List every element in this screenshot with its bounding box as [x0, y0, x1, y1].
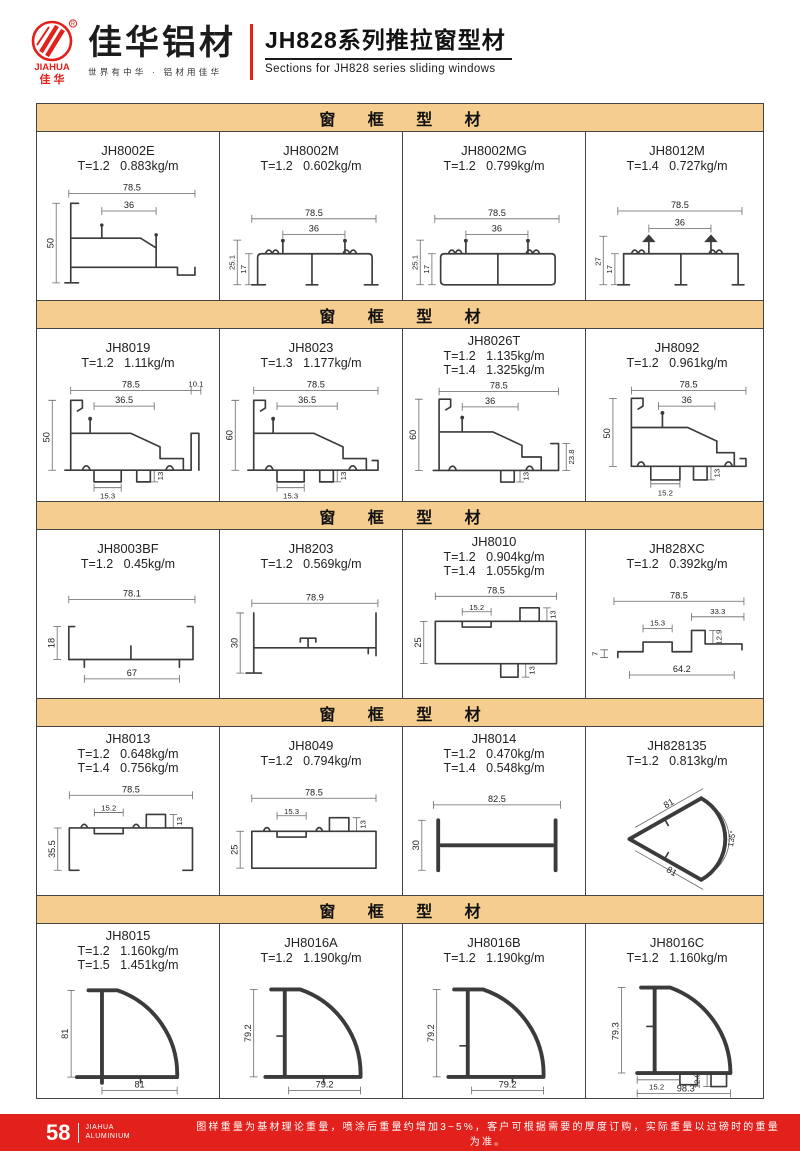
dim-label: 81 [662, 796, 676, 810]
section-title: 窗 框 型 材 [305, 303, 494, 327]
section-4: 窗 框 型 材 JH8013 T=1.2 0.648kg/m T=1.4 0.7… [37, 698, 763, 895]
profiles-table: 窗 框 型 材 JH8002E T=1.2 0.883kg/m [36, 103, 764, 1099]
dim-label: 78.5 [680, 379, 698, 389]
profile-spec: T=1.4 0.727kg/m [626, 159, 727, 173]
profile-code: JH8002MG [461, 144, 527, 159]
dim-label: 36 [492, 223, 502, 233]
profile-cell-JH8010: JH8010 T=1.2 0.904kg/m T=1.4 1.055kg/m [403, 530, 586, 698]
profile-outline [433, 399, 558, 482]
dim-label: 30 [229, 638, 239, 648]
dim-label: 13 [549, 610, 558, 619]
drawing-JH8016C: 79.3 15.2 12.9 98.3 [586, 972, 768, 1098]
profile-cell-JH8016A: JH8016A T=1.2 1.190kg/m 79.2 79.2 [220, 924, 403, 1098]
dim-label: 13 [713, 469, 722, 478]
dim-label: 25 [229, 844, 239, 854]
drawing-JH8019: 78.5 10.1 36.5 50 15.3 13 [37, 377, 219, 501]
section-title: 窗 框 型 材 [305, 106, 494, 130]
profile-spec: T=1.4 1.055kg/m [443, 564, 544, 578]
drawing-JH8203: 78.9 30 [220, 578, 402, 698]
drawing-JH8012M: 78.5 36 27 17 [586, 180, 768, 300]
profile-code: JH828XC [649, 542, 705, 557]
section-2: 窗 框 型 材 JH8019 T=1.2 1.11kg/m [37, 300, 763, 501]
profile-code: JH828135 [647, 739, 706, 754]
profile-spec: T=1.2 0.883kg/m [77, 159, 178, 173]
profile-code: JH8016B [467, 936, 520, 951]
dim-label: 78.5 [305, 787, 323, 797]
dim-label: 79.2 [316, 1079, 334, 1089]
profile-code: JH8023 [289, 341, 334, 356]
dim-label: 36 [309, 223, 319, 233]
section-4-header: 窗 框 型 材 [37, 698, 763, 727]
dim-label: 36 [682, 395, 692, 405]
section-title: 窗 框 型 材 [305, 898, 494, 922]
dim-label: 78.5 [490, 380, 508, 390]
profile-cell-JH8203: JH8203 T=1.2 0.569kg/m 78.9 30 [220, 530, 403, 698]
profile-spec: T=1.2 0.648kg/m [77, 747, 178, 761]
drawing-JH8015: 81 81 [37, 973, 219, 1098]
dim-label: 17 [605, 265, 614, 274]
dim-label: 81 [60, 1028, 70, 1038]
section-2-row: JH8019 T=1.2 1.11kg/m 78.5 [37, 329, 763, 501]
dim-label: 15.2 [649, 1082, 664, 1091]
dim-label: 7 [590, 651, 599, 655]
profile-outline [448, 989, 543, 1076]
cell-label: JH8049 T=1.2 0.794kg/m [220, 727, 402, 775]
section-5-header: 窗 框 型 材 [37, 895, 763, 924]
section-2-header: 窗 框 型 材 [37, 300, 763, 329]
dim-label: 27 [593, 257, 602, 266]
dim-label: 78.5 [122, 784, 140, 794]
dim-label: 36 [675, 217, 685, 227]
profile-outline [77, 990, 177, 1083]
section-5: 窗 框 型 材 JH8015 T=1.2 1.160kg/m T=1.5 1.4… [37, 895, 763, 1098]
profile-spec: T=1.4 0.756kg/m [77, 761, 178, 775]
profile-cell-JH8015: JH8015 T=1.2 1.160kg/m T=1.5 1.451kg/m 8… [37, 924, 220, 1098]
cell-label: JH828135 T=1.2 0.813kg/m [586, 727, 768, 775]
dim-label: 15.2 [469, 602, 484, 611]
dim-label: 60 [408, 429, 418, 439]
drawing-JH8026T: 78.5 36 60 23.8 13 [403, 378, 585, 501]
profile-spec: T=1.2 0.45kg/m [81, 557, 175, 571]
brand-title: 佳华铝材 [88, 26, 236, 60]
page-header: R JIAHUA 佳 华 佳华铝材 世界有中华 · 铝材用佳华 JH828系列推… [0, 0, 800, 103]
dimension-lines [609, 386, 746, 487]
dim-label: 35.5 [47, 840, 57, 858]
dim-label: 78.5 [488, 208, 506, 218]
profile-cell-JH8014: JH8014 T=1.2 0.470kg/m T=1.4 0.548kg/m 8… [403, 727, 586, 895]
dim-label: 36.5 [115, 395, 133, 405]
drawing-JH8010: 78.5 15.2 13 25 13 [403, 579, 585, 698]
profile-spec: T=1.2 0.904kg/m [443, 550, 544, 564]
profile-code: JH8092 [655, 341, 700, 356]
section-5-row: JH8015 T=1.2 1.160kg/m T=1.5 1.451kg/m 8… [37, 924, 763, 1098]
cell-label: JH8012M T=1.4 0.727kg/m [586, 132, 768, 180]
section-3-row: JH8003BF T=1.2 0.45kg/m 78.1 18 67 [37, 530, 763, 698]
profile-code: JH8010 [472, 535, 517, 550]
dim-label: 50 [41, 432, 51, 442]
cell-label: JH8026T T=1.2 1.135kg/m T=1.4 1.325kg/m [403, 329, 585, 378]
dim-label: 15.3 [284, 806, 299, 815]
dim-label: 79.2 [426, 1024, 436, 1042]
dim-label: 81 [134, 1079, 144, 1089]
profile-spec: T=1.4 0.548kg/m [443, 761, 544, 775]
cell-label: JH8203 T=1.2 0.569kg/m [220, 530, 402, 578]
dimension-lines [618, 987, 731, 1097]
drawing-JH8023: 78.5 36.5 60 15.3 13 [220, 377, 402, 501]
footer-note: 图样重量为基材理论重量，喷涂后重量约增加3~5%，客户可根据需要的厚度订购，实际… [130, 1118, 800, 1148]
profile-cell-JH8092: JH8092 T=1.2 0.961kg/m 78.5 [586, 329, 768, 501]
profile-cell-JH8002MG: JH8002MG T=1.2 0.799kg/m 78.5 36 [403, 132, 586, 300]
profile-outline [248, 400, 378, 482]
dim-label: 78.5 [671, 200, 689, 210]
profile-spec: T=1.2 1.190kg/m [260, 951, 361, 965]
footer-brand-line2: ALUMINIUM [85, 1133, 130, 1142]
dim-label: 79.2 [499, 1079, 517, 1089]
profile-spec: T=1.2 1.190kg/m [443, 951, 544, 965]
profile-spec: T=1.2 0.392kg/m [626, 557, 727, 571]
brand-block: 佳华铝材 世界有中华 · 铝材用佳华 [88, 26, 236, 78]
section-title: 窗 框 型 材 [305, 701, 494, 725]
cell-label: JH8092 T=1.2 0.961kg/m [586, 329, 768, 377]
profile-outline [69, 626, 193, 667]
drawing-JH828135: 81 81 135° [586, 775, 768, 895]
profile-spec: T=1.4 1.325kg/m [443, 363, 544, 377]
cell-label: JH8019 T=1.2 1.11kg/m [37, 329, 219, 377]
profile-spec: T=1.2 1.11kg/m [81, 356, 174, 370]
profile-code: JH8203 [289, 542, 334, 557]
dim-label: 36.5 [298, 395, 316, 405]
dim-label: 78.1 [123, 588, 141, 598]
profile-code: JH8003BF [97, 542, 158, 557]
cell-label: JH828XC T=1.2 0.392kg/m [586, 530, 768, 578]
dim-label: 25 [413, 637, 423, 647]
footer-brand: JIAHUA ALUMINIUM [85, 1124, 130, 1142]
profile-cell-JH8002E: JH8002E T=1.2 0.883kg/m 78.5 36 50 [37, 132, 220, 300]
profile-code: JH8014 [472, 732, 517, 747]
dimension-lines [236, 599, 378, 673]
cell-label: JH8003BF T=1.2 0.45kg/m [37, 530, 219, 578]
cell-label: JH8002M T=1.2 0.602kg/m [220, 132, 402, 180]
page-number: 58 [46, 1122, 70, 1144]
cell-label: JH8016B T=1.2 1.190kg/m [403, 924, 585, 972]
profile-code: JH8013 [106, 732, 151, 747]
profile-outline [65, 400, 199, 482]
profile-cell-JH828135: JH828135 T=1.2 0.813kg/m 81 81 135° [586, 727, 768, 895]
dim-label: 13 [358, 820, 367, 829]
dim-label: 23.8 [567, 449, 576, 464]
drawing-JH8016A: 79.2 79.2 [220, 972, 402, 1098]
dim-label: 79.3 [611, 1022, 621, 1040]
profile-cell-JH8012M: JH8012M T=1.4 0.727kg/m 78.5 36 [586, 132, 768, 300]
dim-label: 15.2 [101, 803, 116, 812]
profile-outline [618, 242, 744, 285]
dim-label: 13 [339, 471, 348, 480]
dim-label: 64.2 [673, 664, 691, 674]
drawing-JH8002MG: 78.5 36 25.1 17 [403, 180, 585, 300]
dim-label: 15.3 [100, 491, 115, 500]
dim-label: 30 [411, 840, 421, 850]
header-divider [250, 24, 253, 80]
section-4-row: JH8013 T=1.2 0.648kg/m T=1.4 0.756kg/m 7… [37, 727, 763, 895]
dimension-lines [635, 788, 729, 889]
logo-text-en: JIAHUA [34, 62, 70, 73]
catalog-page: R JIAHUA 佳 华 佳华铝材 世界有中华 · 铝材用佳华 JH828系列推… [0, 0, 800, 1167]
dim-label: 67 [127, 668, 137, 678]
dim-label: 82.5 [488, 794, 506, 804]
dimension-lines [53, 595, 195, 682]
profile-code: JH8016A [284, 936, 337, 951]
dim-label: 60 [224, 430, 234, 440]
section-3-header: 窗 框 型 材 [37, 501, 763, 530]
dim-label: 12.9 [715, 629, 724, 644]
profile-cell-JH8016C: JH8016C T=1.2 1.160kg/m 79.3 15.2 [586, 924, 768, 1098]
drawing-JH8014: 82.5 30 [403, 776, 585, 895]
section-3: 窗 框 型 材 JH8003BF T=1.2 0.45kg/m [37, 501, 763, 698]
cell-label: JH8016C T=1.2 1.160kg/m [586, 924, 768, 972]
drawing-JH8016B: 79.2 79.2 [403, 972, 585, 1098]
profile-code: JH8016C [650, 936, 704, 951]
profile-code: JH8002E [101, 144, 154, 159]
dim-label: 78.5 [305, 208, 323, 218]
series-block: JH828系列推拉窗型材 Sections for JH828 series s… [265, 28, 512, 74]
profile-cell-JH8002M: JH8002M T=1.2 0.602kg/m 78.5 36 [220, 132, 403, 300]
dimension-lines [599, 207, 742, 285]
profile-spec: T=1.2 1.160kg/m [77, 944, 178, 958]
brand-tagline: 世界有中华 · 铝材用佳华 [88, 66, 236, 78]
profile-code: JH8049 [289, 739, 334, 754]
profile-spec: T=1.2 0.813kg/m [626, 754, 727, 768]
cell-label: JH8016A T=1.2 1.190kg/m [220, 924, 402, 972]
profile-cell-JH8019: JH8019 T=1.2 1.11kg/m 78.5 [37, 329, 220, 501]
drawing-JH8013: 78.5 15.2 13 35.5 [37, 776, 219, 895]
dim-label: 15.3 [650, 618, 665, 627]
dim-label: 18 [46, 638, 56, 648]
dim-label: 13 [175, 817, 184, 826]
profile-code: JH8002M [283, 144, 339, 159]
dim-label: 25.1 [227, 255, 236, 270]
cell-label: JH8013 T=1.2 0.648kg/m T=1.4 0.756kg/m [37, 727, 219, 776]
profile-spec: T=1.2 0.961kg/m [626, 356, 727, 370]
page-footer: 58 JIAHUA ALUMINIUM 图样重量为基材理论重量，喷涂后重量约增加… [0, 1114, 800, 1151]
profile-cell-JH8049: JH8049 T=1.2 0.794kg/m 78.5 15.3 [220, 727, 403, 895]
footer-divider [78, 1123, 79, 1143]
dim-label: 78.9 [306, 592, 324, 602]
profile-outline [435, 608, 556, 677]
dim-label: 78.5 [307, 379, 325, 389]
drawing-JH8002E: 78.5 36 50 [37, 180, 219, 300]
profile-outline [438, 820, 555, 870]
cell-label: JH8023 T=1.3 1.177kg/m [220, 329, 402, 377]
jiahua-logo-icon: R JIAHUA 佳 华 [26, 17, 80, 87]
dim-label: 36 [485, 396, 495, 406]
drawing-JH828XC: 78.5 33.3 15.3 12.9 7 64.2 [586, 578, 768, 698]
dim-label: 17 [239, 265, 248, 274]
profile-cell-JH8003BF: JH8003BF T=1.2 0.45kg/m 78.1 18 67 [37, 530, 220, 698]
logo-text-cn: 佳 华 [39, 72, 64, 86]
drawing-JH8003BF: 78.1 18 67 [37, 578, 219, 698]
dim-label: 10.1 [188, 379, 203, 388]
dim-label: 15.2 [658, 488, 673, 497]
dim-label: 36 [124, 200, 134, 210]
profile-spec: T=1.5 1.451kg/m [77, 958, 178, 972]
dim-label: 25.1 [410, 255, 419, 270]
cell-label: JH8015 T=1.2 1.160kg/m T=1.5 1.451kg/m [37, 924, 219, 973]
dim-label: 78.5 [670, 590, 688, 600]
profile-cell-JH8023: JH8023 T=1.3 1.177kg/m 78.5 [220, 329, 403, 501]
dim-label: 78.5 [123, 182, 141, 192]
profile-outline [65, 203, 195, 283]
footer-brand-line1: JIAHUA [85, 1124, 130, 1133]
dim-label: 78.5 [122, 379, 140, 389]
profile-cell-JH8016B: JH8016B T=1.2 1.190kg/m 79.2 79.2 [403, 924, 586, 1098]
drawing-JH8049: 78.5 15.3 13 25 [220, 775, 402, 895]
profile-outline [629, 798, 725, 880]
registered-mark: R [71, 21, 75, 27]
series-title: JH828系列推拉窗型材 [265, 28, 512, 59]
profile-outline [246, 613, 376, 673]
profile-code: JH8026T [468, 334, 521, 349]
profile-spec: T=1.2 1.135kg/m [443, 349, 544, 363]
profile-spec: T=1.2 1.160kg/m [626, 951, 727, 965]
profile-code: JH8019 [106, 341, 151, 356]
section-title: 窗 框 型 材 [305, 504, 494, 528]
drawing-JH8092: 78.5 36 50 15.2 13 [586, 377, 768, 501]
dim-label: 13 [522, 472, 531, 481]
profile-code: JH8015 [106, 929, 151, 944]
profile-outline [631, 398, 746, 480]
dim-label: 50 [602, 428, 612, 438]
profile-code: JH8012M [649, 144, 705, 159]
profile-spec: T=1.2 0.794kg/m [260, 754, 361, 768]
profile-cell-JH8013: JH8013 T=1.2 0.648kg/m T=1.4 0.756kg/m 7… [37, 727, 220, 895]
profile-outline [265, 989, 360, 1076]
section-1-header: 窗 框 型 材 [37, 104, 763, 132]
dim-label: 50 [45, 238, 55, 248]
profile-outline [637, 987, 730, 1072]
profile-outline [441, 242, 555, 285]
dim-label: 13 [527, 666, 536, 675]
profile-spec: T=1.2 0.602kg/m [260, 159, 361, 173]
cell-label: JH8002MG T=1.2 0.799kg/m [403, 132, 585, 180]
dim-label: 78.5 [487, 585, 505, 595]
dim-label: 33.3 [710, 607, 725, 616]
profile-cell-JH828XC: JH828XC T=1.2 0.392kg/m [586, 530, 768, 698]
dim-label: 15.3 [283, 491, 298, 500]
profile-spec: T=1.2 0.569kg/m [260, 557, 361, 571]
drawing-JH8002M: 78.5 36 25.1 17 [220, 180, 402, 300]
profile-cell-JH8026T: JH8026T T=1.2 1.135kg/m T=1.4 1.325kg/m [403, 329, 586, 501]
cell-label: JH8010 T=1.2 0.904kg/m T=1.4 1.055kg/m [403, 530, 585, 579]
dim-label: 13 [156, 471, 165, 480]
section-1-row: JH8002E T=1.2 0.883kg/m 78.5 36 50 [37, 132, 763, 300]
dim-label: 79.2 [243, 1024, 253, 1042]
profile-spec: T=1.2 0.470kg/m [443, 747, 544, 761]
dim-label: 17 [422, 265, 431, 274]
profile-spec: T=1.3 1.177kg/m [260, 356, 361, 370]
cell-label: JH8002E T=1.2 0.883kg/m [37, 132, 219, 180]
section-1: 窗 框 型 材 JH8002E T=1.2 0.883kg/m [37, 104, 763, 300]
profile-spec: T=1.2 0.799kg/m [443, 159, 544, 173]
dim-label: 135° [726, 830, 738, 847]
series-subtitle: Sections for JH828 series sliding window… [265, 63, 512, 75]
cell-label: JH8014 T=1.2 0.470kg/m T=1.4 0.548kg/m [403, 727, 585, 776]
profile-outline [252, 242, 378, 285]
